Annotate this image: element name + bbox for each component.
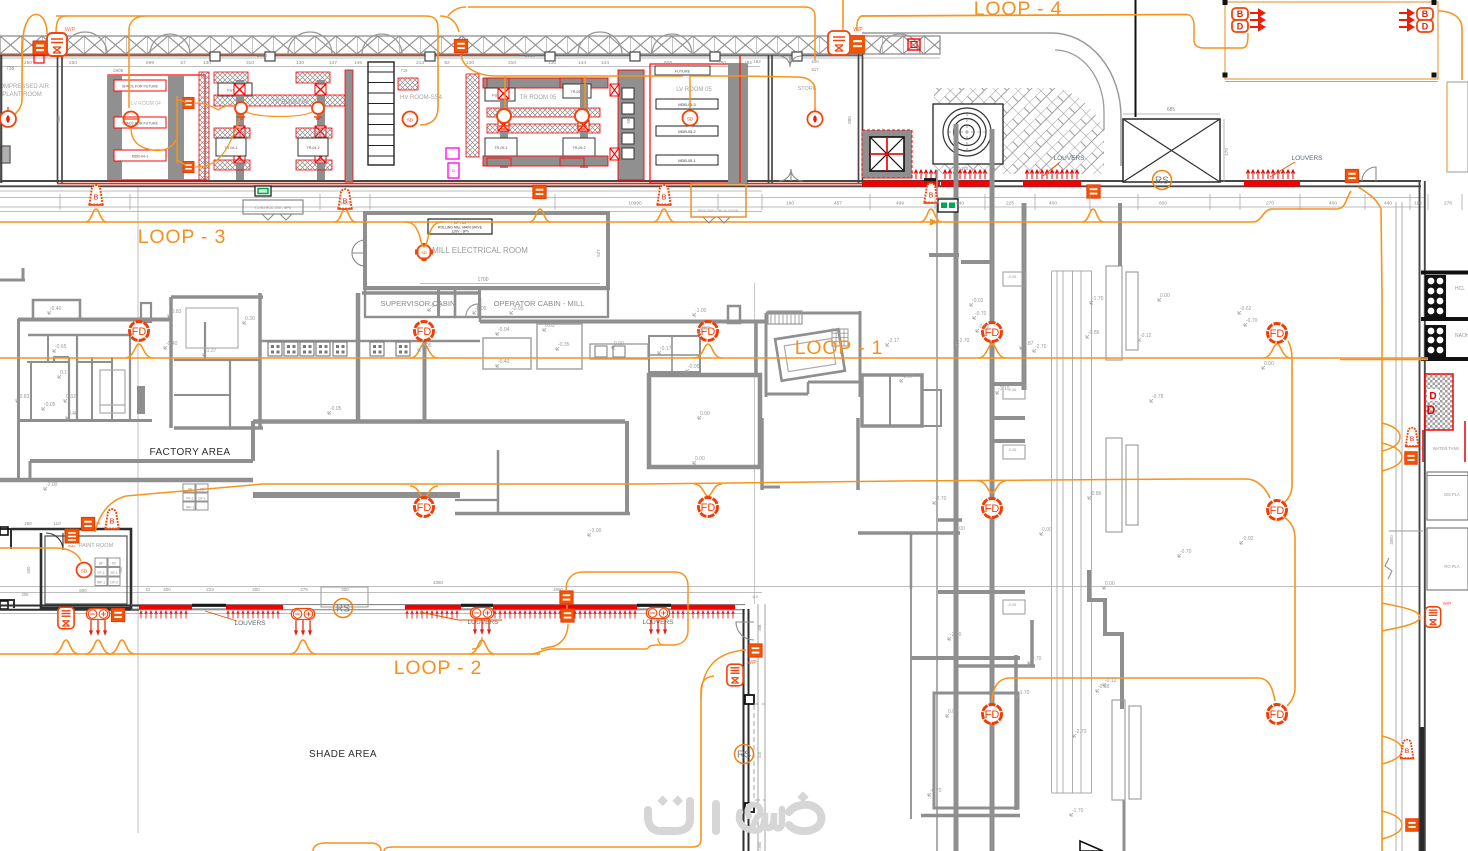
svg-text:D: D [1427,403,1436,417]
svg-text:182: 182 [744,60,752,66]
svg-text:-2.70: -2.70 [950,632,962,638]
svg-text:223: 223 [206,587,214,592]
svg-text:MILL ELECTRICAL ROOM: MILL ELECTRICAL ROOM [432,246,528,255]
svg-text:-0.70: -0.70 [1246,318,1258,324]
svg-text:120V - 3Ph: 120V - 3Ph [452,230,469,234]
svg-text:-0.86: -0.86 [1088,330,1100,336]
svg-text:MDB-05-3: MDB-05-3 [678,103,695,107]
svg-text:45B: 45B [758,624,762,631]
svg-text:4380: 4380 [433,580,444,585]
svg-text:SPACE FOR FUTURE: SPACE FOR FUTURE [122,84,159,88]
svg-text:500: 500 [26,566,31,574]
svg-text:110: 110 [1414,201,1422,207]
svg-text:310: 310 [758,752,762,758]
svg-text:146: 146 [354,60,362,66]
svg-text:FD: FD [132,326,147,338]
svg-text:0.00: 0.00 [695,456,705,462]
svg-text:OPERATOR CABIN - MILL: OPERATOR CABIN - MILL [494,299,585,308]
svg-text:02: 02 [112,562,116,566]
svg-text:D: D [452,168,455,173]
svg-text:CONTROL 200 - 8Ph: CONTROL 200 - 8Ph [255,206,291,210]
svg-text:-0.70: -0.70 [930,788,942,794]
svg-text:LOOP - 3: LOOP - 3 [138,226,226,248]
svg-text:FD: FD [985,709,1000,721]
svg-text:-0.40: -0.40 [498,359,510,365]
svg-text:SD: SD [407,118,414,123]
svg-text:880: 880 [847,116,852,124]
svg-text:MDB-05-2: MDB-05-2 [678,130,695,134]
svg-text:W/P: W/P [747,660,757,666]
svg-text:-0.05: -0.05 [512,306,524,312]
svg-text:182: 182 [753,59,761,64]
svg-text:HCL: HCL [1455,286,1465,292]
svg-text:SF: SF [99,562,103,566]
svg-text:-0.05: -0.05 [330,406,342,412]
svg-text:-2.17: -2.17 [888,338,900,344]
svg-text:92: 92 [444,60,450,66]
svg-text:B: B [662,193,667,201]
svg-text:WF-1: WF-1 [186,506,194,510]
svg-text:-1.10: -1.10 [998,386,1010,392]
svg-text:-3.00: -3.00 [590,528,602,534]
svg-text:-2.87: -2.87 [1022,341,1034,347]
svg-text:213: 213 [416,60,424,66]
svg-text:RO PLA: RO PLA [1444,564,1460,569]
svg-text:RS: RS [1155,176,1169,187]
svg-text:0.46: 0.46 [68,411,78,417]
svg-text:0.00: 0.00 [614,341,624,347]
svg-text:-0.05: -0.05 [475,306,487,312]
svg-text:-0.70: -0.70 [1180,549,1192,555]
svg-text:-2.70: -2.70 [1035,344,1047,350]
svg-text:RS: RS [737,750,751,761]
svg-text:0.00: 0.00 [700,326,710,332]
svg-text:-0.35: -0.35 [558,342,570,348]
svg-text:DF-2: DF-2 [110,581,117,585]
svg-text:FD: FD [1270,505,1285,517]
svg-text:MDB-05-1: MDB-05-1 [678,159,695,163]
svg-text:1060: 1060 [758,842,762,850]
svg-text:-0.02: -0.02 [1242,536,1254,542]
svg-text:640: 640 [956,201,964,207]
svg-text:-0.40: -0.40 [50,306,62,312]
svg-text:144: 144 [578,60,586,66]
svg-text:B: B [1422,9,1429,19]
svg-text:1700: 1700 [477,277,488,283]
svg-text:250: 250 [69,60,77,66]
svg-text:LOOP - 1: LOOP - 1 [795,337,883,359]
svg-text:617: 617 [812,67,820,72]
svg-text:608: 608 [664,60,672,66]
svg-text:FD: FD [1270,328,1285,340]
svg-text:310: 310 [246,60,254,66]
svg-text:SF-1: SF-1 [198,497,205,501]
svg-text:130: 130 [203,60,211,66]
svg-text:0.32: 0.32 [66,394,76,400]
svg-text:SHADE AREA: SHADE AREA [309,749,377,760]
svg-text:-0.70: -0.70 [1030,656,1042,662]
svg-text:D: D [1237,22,1244,32]
svg-text:DM PLA: DM PLA [1444,492,1460,497]
svg-text:-0.04: -0.04 [498,327,510,333]
svg-text:-0.62: -0.62 [1240,306,1252,312]
svg-text:0.30: 0.30 [245,316,255,322]
svg-text:-1.70: -1.70 [1092,296,1104,302]
svg-text:TR ROOM 04: TR ROOM 04 [272,100,309,106]
svg-text:-0.86: -0.86 [1098,684,1110,690]
svg-text:600: 600 [79,588,87,593]
svg-text:4800: 4800 [1389,535,1394,545]
svg-text:HV ROOM-SS4: HV ROOM-SS4 [400,95,443,101]
svg-text:499: 499 [896,201,904,207]
svg-text:-2.70: -2.70 [1075,729,1087,735]
svg-text:-0.05: -0.05 [688,364,700,370]
svg-text:-2.70: -2.70 [958,338,970,344]
svg-text:130: 130 [296,60,304,66]
svg-text:WF-1: WF-1 [97,581,105,585]
svg-text:400: 400 [252,587,260,592]
svg-text:SF-1: SF-1 [110,571,117,575]
svg-text:-1.37: -1.37 [205,348,217,354]
svg-text:NAOH: NAOH [1455,333,1468,339]
svg-text:-0.02: -0.02 [972,298,984,304]
svg-text:130: 130 [466,60,474,66]
svg-text:FF-2: FF-2 [187,497,194,501]
svg-text:-0.86: -0.86 [1090,491,1102,497]
svg-text:-2.70: -2.70 [935,496,947,502]
svg-text:LOUVERS: LOUVERS [1053,155,1085,162]
svg-text:0.17: 0.17 [60,370,70,376]
svg-text:FD: FD [701,502,716,514]
svg-text:690: 690 [56,115,61,123]
svg-text:457: 457 [834,201,842,207]
svg-text:0.00: 0.00 [1105,581,1115,587]
svg-text:FD: FD [985,503,1000,515]
svg-text:FD: FD [417,326,432,338]
svg-text:147: 147 [329,60,337,66]
svg-text:SUPERVISOR CABIN: SUPERVISOR CABIN [381,299,456,308]
svg-text:LV ROOM 04: LV ROOM 04 [131,101,161,107]
svg-text:FD: FD [1270,709,1285,721]
svg-text:W/P: W/P [853,27,863,33]
svg-text:-0.02: -0.02 [978,324,990,330]
svg-text:738: 738 [6,66,15,72]
svg-text:52: 52 [146,587,151,592]
svg-text:PAINT ROOM: PAINT ROOM [79,543,114,549]
svg-text:527: 527 [596,249,601,257]
svg-text:600: 600 [1159,201,1167,207]
svg-text:300: 300 [341,587,349,592]
svg-text:B: B [929,191,934,199]
svg-text:-0.05: -0.05 [420,343,432,349]
svg-text:D: D [1429,391,1436,402]
svg-text:D: D [1422,22,1429,32]
svg-text:B: B [1237,9,1244,19]
svg-text:0.00: 0.00 [948,709,958,715]
svg-text:SD: SD [81,569,88,574]
svg-text:TR-05-2: TR-05-2 [572,146,585,150]
svg-text:B: B [94,193,99,201]
svg-text:-0.70: -0.70 [975,311,987,317]
svg-text:699: 699 [146,60,154,66]
svg-text:10990: 10990 [628,201,642,207]
svg-text:FF-2: FF-2 [98,571,105,575]
svg-text:270: 270 [1266,201,1274,207]
svg-text:FACTORY AREA: FACTORY AREA [150,447,231,458]
svg-text:-0.78: -0.78 [1152,394,1164,400]
svg-text:190: 190 [786,201,794,207]
svg-text:MDB-04-1: MDB-04-1 [132,154,148,158]
svg-text:-0.06: -0.06 [1008,603,1017,607]
svg-text:LV ROOM 05: LV ROOM 05 [676,87,712,93]
svg-text:0.02: 0.02 [545,323,555,329]
svg-text:B: B [110,517,115,525]
svg-text:-0.40: -0.40 [430,303,442,309]
svg-text:-0.06: -0.06 [1008,275,1017,279]
svg-text:PULL: PULL [68,544,76,548]
svg-text:400: 400 [1049,201,1057,207]
svg-text:310: 310 [508,60,516,66]
svg-text:0.00: 0.00 [1042,527,1052,533]
svg-text:680: 680 [626,116,631,124]
svg-text:1050: 1050 [525,53,536,59]
svg-text:470: 470 [1224,148,1229,156]
svg-text:-0.83: -0.83 [18,394,30,400]
svg-text:-1.00: -1.00 [695,308,707,314]
svg-text:LOUVERS: LOUVERS [1291,155,1323,162]
svg-text:0.00: 0.00 [700,411,710,417]
svg-text:RS: RS [336,604,350,615]
svg-text:TR ROOM 05: TR ROOM 05 [520,95,557,101]
svg-text:-0.83: -0.83 [170,309,182,315]
svg-text:W/P: W/P [1443,601,1452,606]
svg-text:-0.40: -0.40 [166,341,178,347]
svg-text:0.00: 0.00 [955,526,965,532]
svg-text:440: 440 [1384,201,1392,207]
svg-text:225: 225 [1006,201,1014,207]
svg-text:719: 719 [401,68,409,73]
svg-text:250: 250 [718,60,726,66]
svg-text:500: 500 [118,566,123,574]
svg-text:-0.65: -0.65 [55,344,67,350]
svg-text:SD: SD [687,117,694,122]
svg-text:LOUVERS: LOUVERS [234,620,266,627]
svg-text:1905: 1905 [113,68,124,74]
svg-text:205: 205 [22,592,30,597]
svg-text:0.00: 0.00 [1160,293,1170,299]
svg-text:TR-04-2: TR-04-2 [306,146,319,150]
svg-text:-0.17: -0.17 [660,346,672,352]
svg-text:-1.70: -1.70 [1018,690,1030,696]
svg-text:110: 110 [752,595,758,599]
svg-text:279: 279 [300,587,308,592]
svg-text:TR-05-1: TR-05-1 [494,146,507,150]
svg-text:LOOP - 2: LOOP - 2 [394,657,482,679]
svg-text:400: 400 [163,587,171,592]
svg-text:-2.00: -2.00 [46,482,58,488]
svg-text:FUTURE: FUTURE [675,69,691,73]
svg-text:6050: 6050 [340,201,351,207]
svg-text:B: B [1410,436,1415,443]
svg-text:67: 67 [180,60,186,66]
svg-text:250: 250 [24,521,32,526]
svg-text:400: 400 [1329,201,1337,207]
svg-text:SD: SD [421,250,427,255]
svg-text:1050: 1050 [257,53,268,59]
svg-text:130: 130 [548,60,556,66]
svg-text:-0.06: -0.06 [1008,448,1017,452]
svg-text:-1.70: -1.70 [1072,808,1084,814]
svg-text:-0.12: -0.12 [1140,333,1152,339]
svg-text:W/P: W/P [65,27,76,33]
svg-text:LOOP - 4: LOOP - 4 [974,0,1062,20]
svg-text:-2.67: -2.67 [902,374,914,380]
svg-text:COMPRESSED AIR: COMPRESSED AIR [0,84,50,90]
svg-text:WATER TANK: WATER TANK [1433,446,1460,451]
svg-text:144: 144 [601,60,609,66]
svg-text:685: 685 [1167,107,1176,113]
svg-text:-0.05: -0.05 [44,402,56,408]
svg-text:-270: -270 [960,166,969,171]
svg-text:0.00: 0.00 [1264,361,1274,367]
svg-text:250: 250 [24,60,32,66]
svg-text:FD: FD [417,502,432,514]
svg-text:278: 278 [1444,201,1452,207]
svg-text:B: B [1405,748,1410,755]
svg-text:110: 110 [53,521,61,526]
